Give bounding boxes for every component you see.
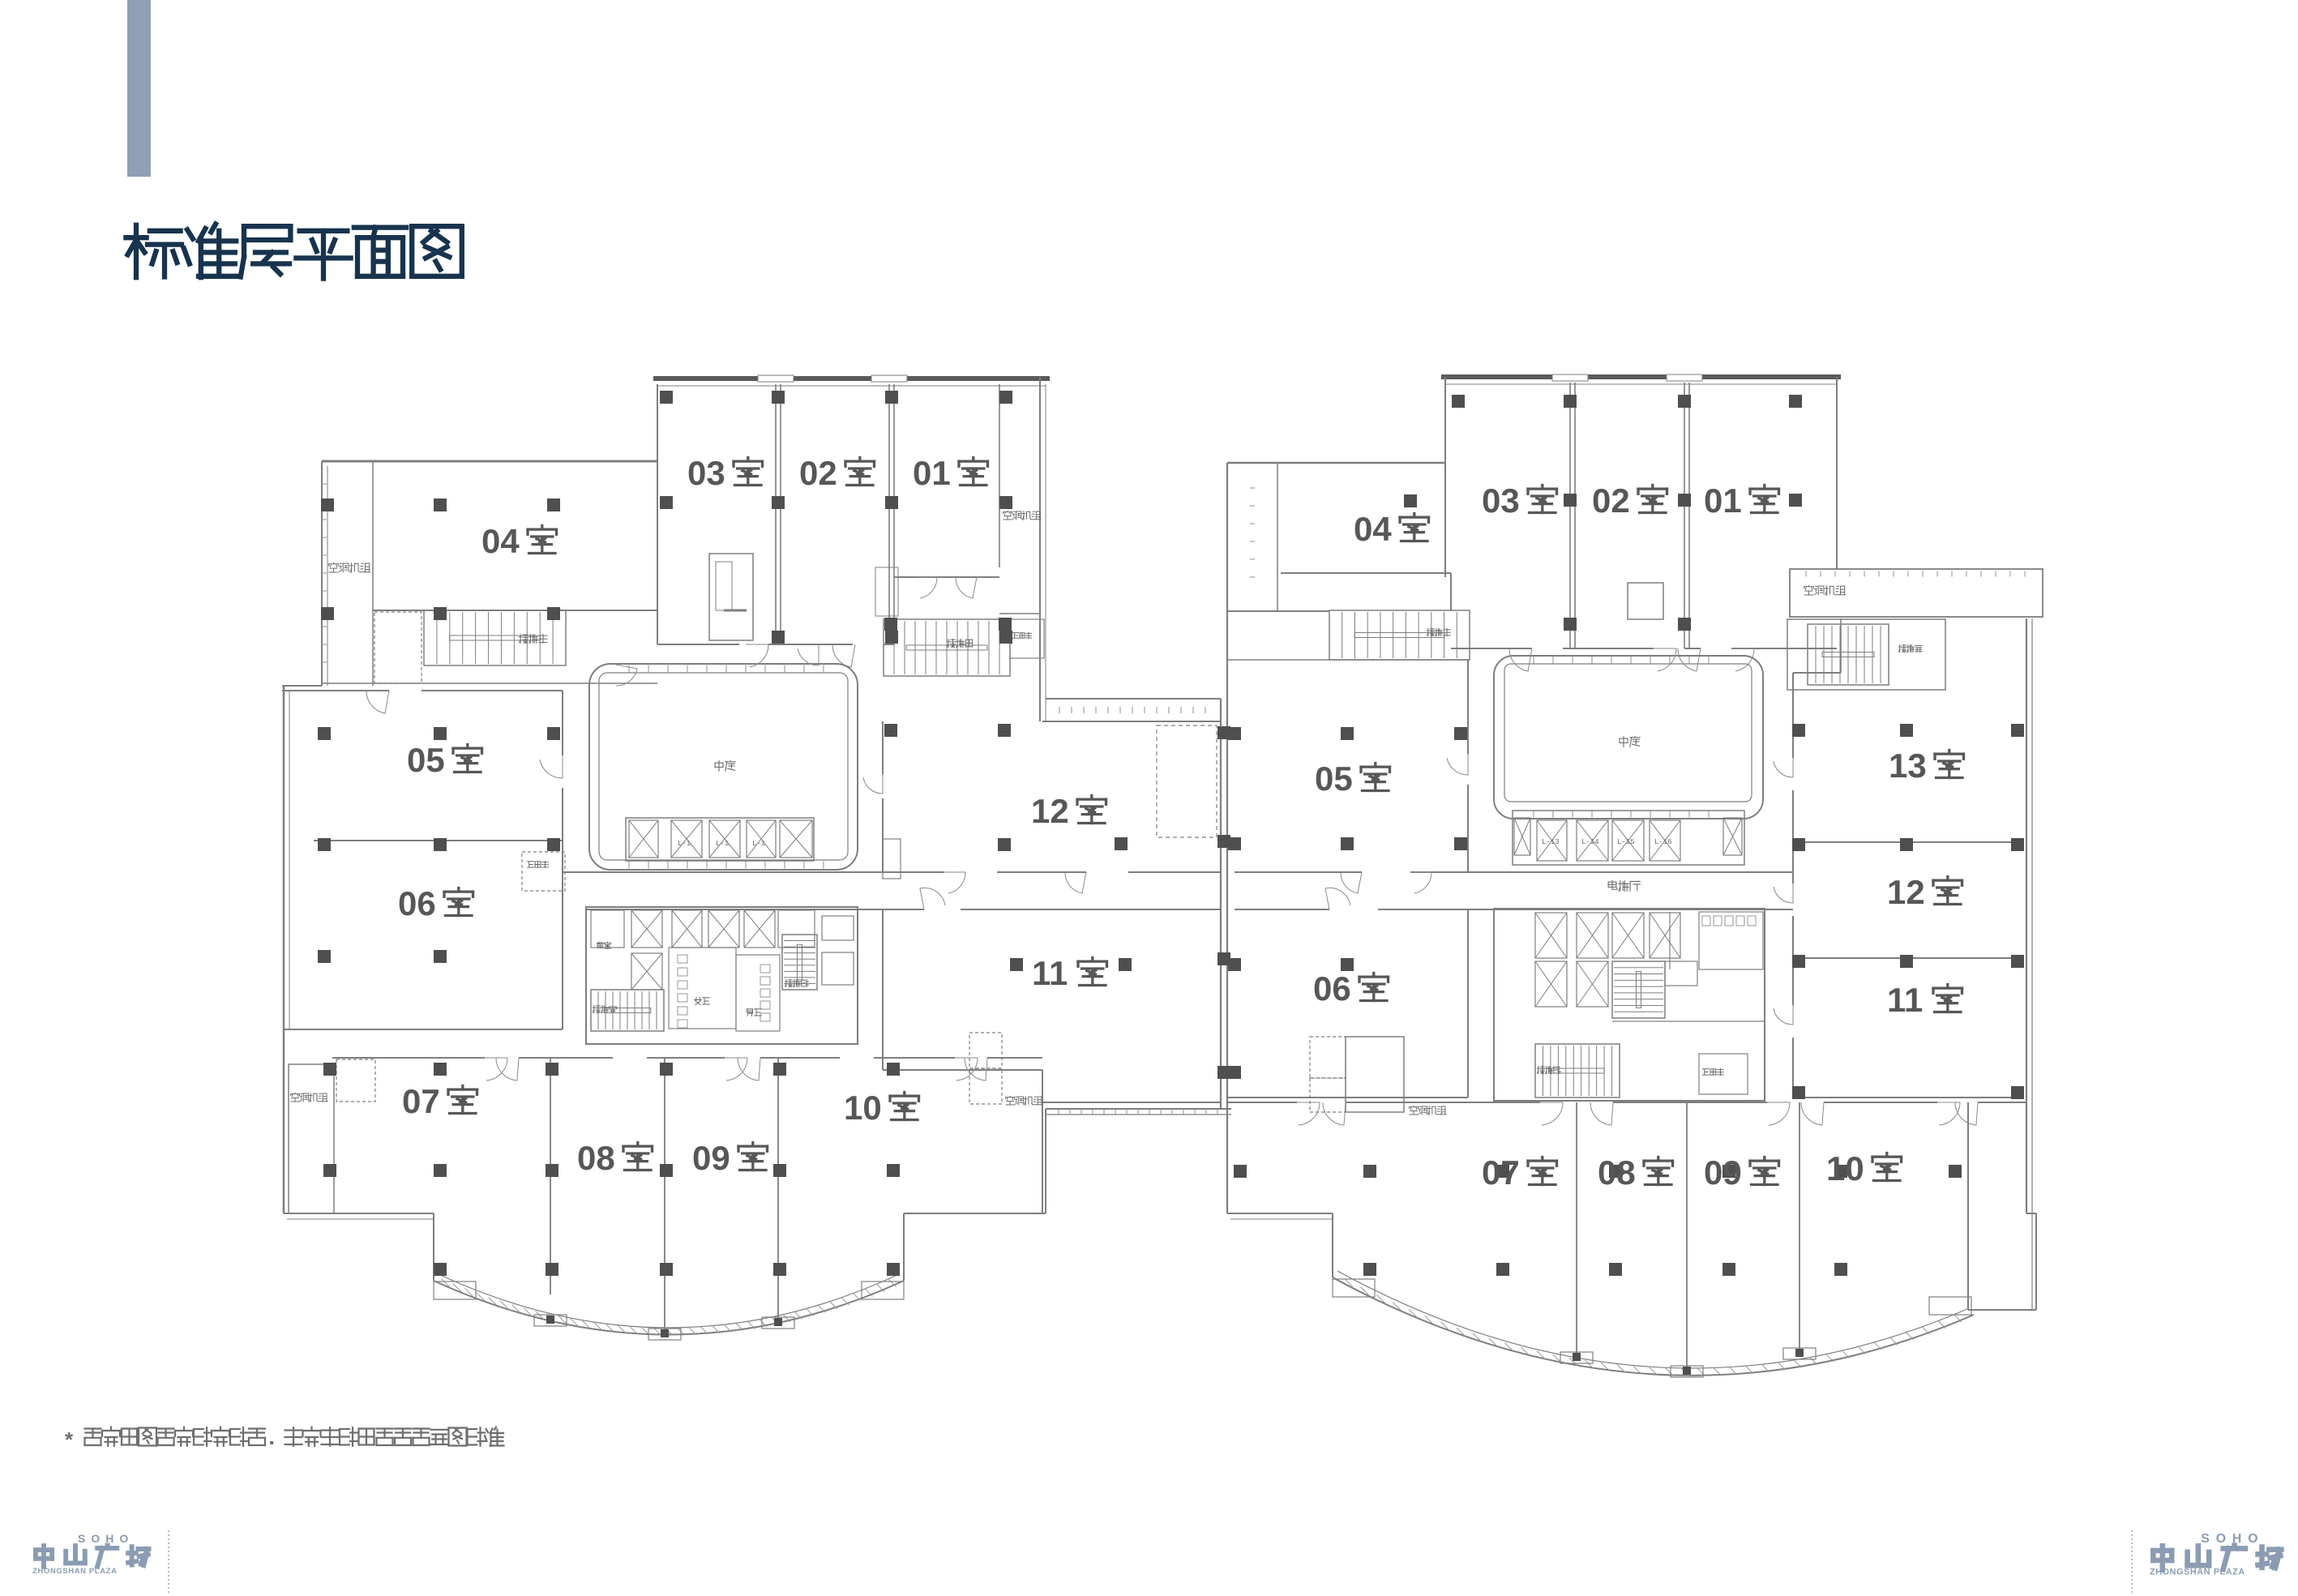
svg-text:04: 04	[1354, 510, 1392, 548]
svg-text:01: 01	[913, 454, 951, 492]
svg-text:11: 11	[1887, 981, 1923, 1019]
svg-text:12: 12	[1031, 792, 1069, 830]
svg-text:02: 02	[799, 454, 837, 492]
svg-text:05: 05	[1315, 759, 1353, 798]
svg-text:03: 03	[1482, 481, 1520, 520]
svg-text:*: *	[65, 1427, 74, 1452]
svg-text:08: 08	[1598, 1153, 1636, 1192]
svg-text:ZHONGSHAN PLAZA: ZHONGSHAN PLAZA	[2150, 1568, 2245, 1577]
svg-text:03: 03	[687, 454, 725, 492]
svg-text:10: 10	[844, 1089, 882, 1127]
svg-text:05: 05	[407, 741, 445, 779]
svg-text:L-1: L-1	[716, 840, 729, 848]
svg-text:01: 01	[1704, 481, 1742, 520]
svg-text:L-14: L-14	[1581, 838, 1599, 846]
svg-text:09: 09	[1704, 1153, 1742, 1192]
svg-text:ZHONGSHAN PLAZA: ZHONGSHAN PLAZA	[32, 1567, 118, 1576]
svg-text:09: 09	[692, 1139, 730, 1177]
svg-text:L-15: L-15	[1617, 838, 1635, 846]
svg-text:11: 11	[1032, 954, 1068, 992]
svg-text:12: 12	[1887, 873, 1925, 911]
svg-text:06: 06	[1313, 969, 1351, 1008]
svg-text:13: 13	[1889, 747, 1927, 785]
svg-text:08: 08	[577, 1139, 615, 1177]
svg-text:L-13: L-13	[1542, 838, 1560, 846]
svg-text:L-1: L-1	[752, 840, 765, 848]
svg-text:04: 04	[481, 522, 520, 560]
svg-text:SOHO: SOHO	[78, 1532, 134, 1545]
svg-text:L-16: L-16	[1654, 838, 1672, 846]
svg-text:L-1: L-1	[678, 840, 691, 848]
svg-text:02: 02	[1592, 481, 1630, 520]
svg-text:07: 07	[402, 1082, 440, 1120]
svg-text:06: 06	[398, 884, 436, 922]
svg-text:10: 10	[1826, 1149, 1864, 1187]
svg-text:07: 07	[1482, 1153, 1520, 1192]
